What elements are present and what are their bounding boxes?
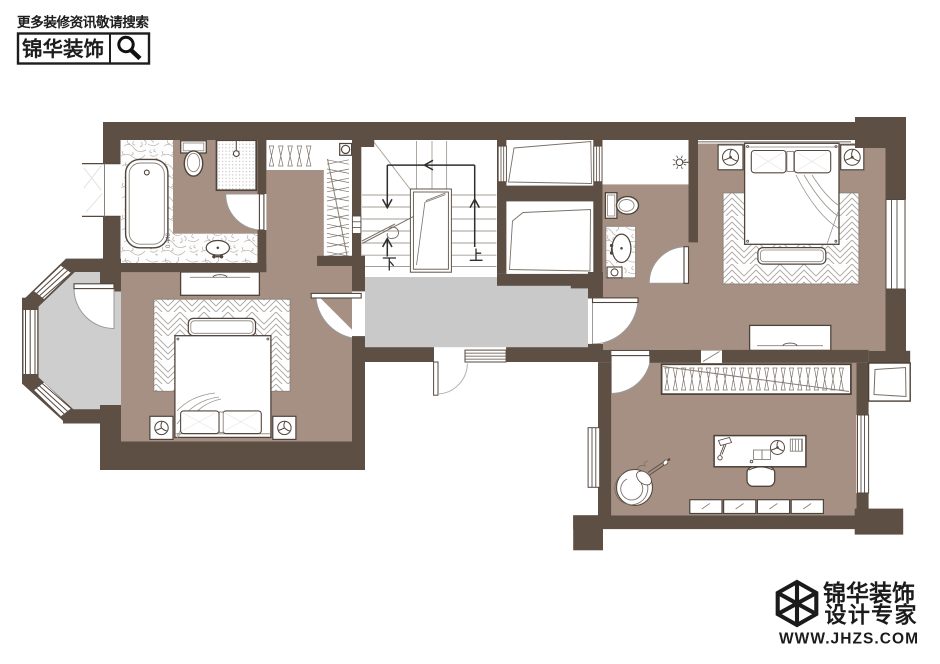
svg-text:设计专家: 设计专家 xyxy=(825,603,918,628)
svg-text:WWW.JHZS.COM: WWW.JHZS.COM xyxy=(779,631,918,648)
svg-text:更多装修资讯敬请搜索: 更多装修资讯敬请搜索 xyxy=(17,14,149,30)
svg-text:锦华装饰: 锦华装饰 xyxy=(22,37,104,61)
svg-text:0.440: 0.440 xyxy=(166,232,172,248)
